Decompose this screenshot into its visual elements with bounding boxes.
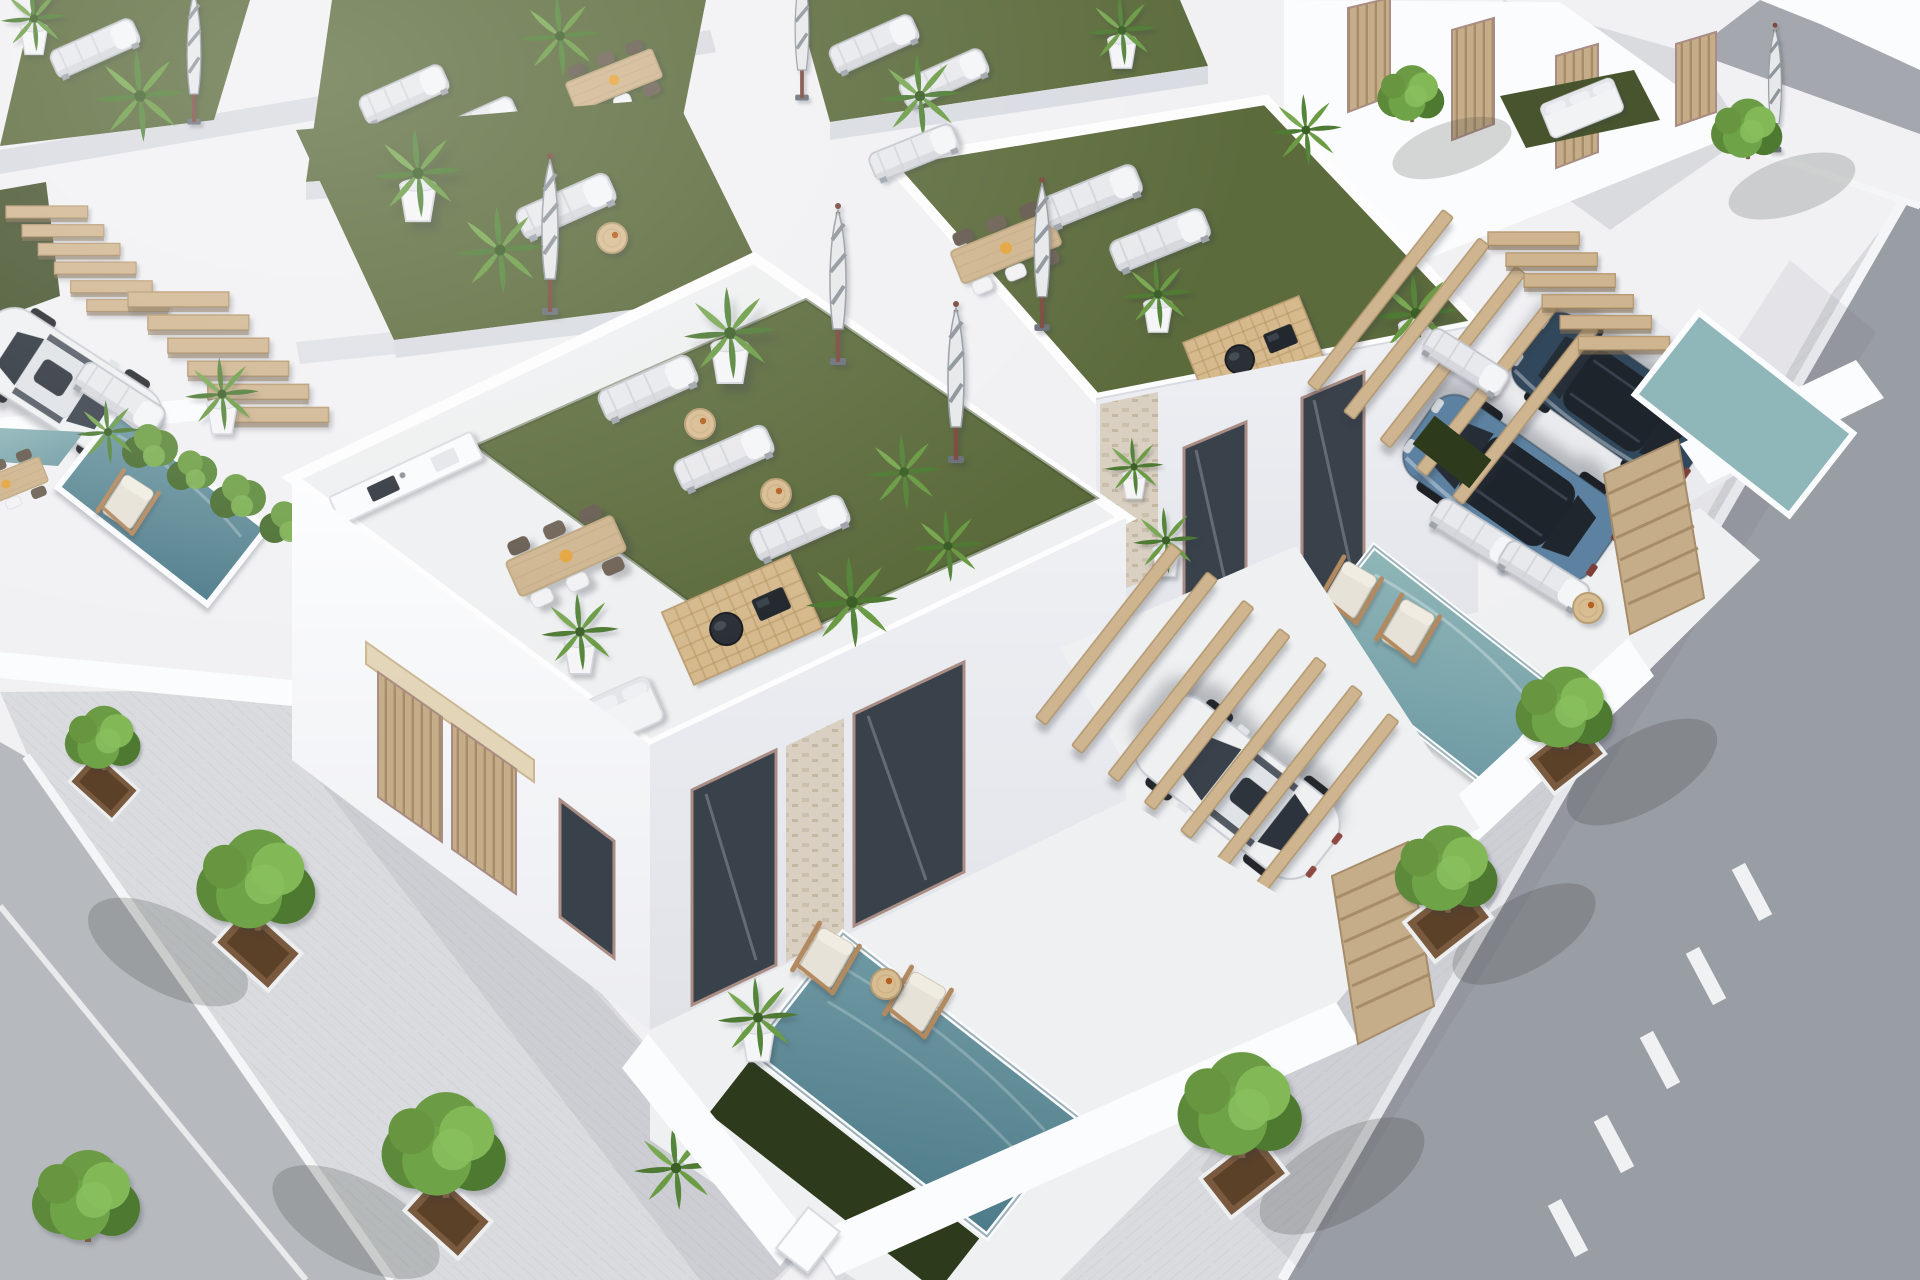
- aerial-villa-render: [0, 0, 1920, 1280]
- render-stage: [0, 0, 1920, 1280]
- sunlight-wash: [0, 0, 1920, 1280]
